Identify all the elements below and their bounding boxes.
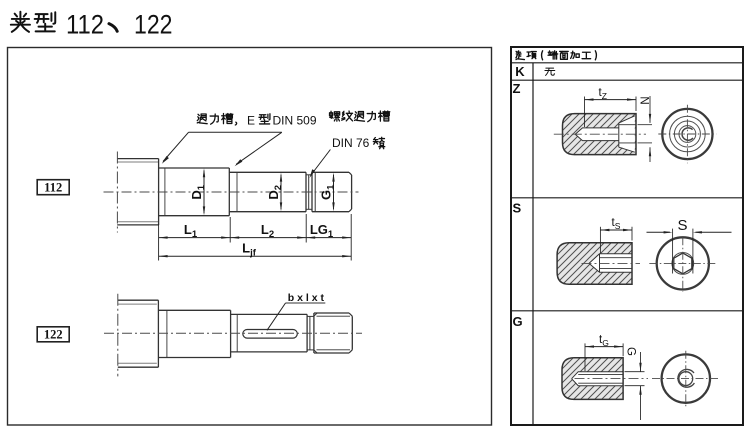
svg-text:122: 122 xyxy=(134,10,173,40)
svg-text:DIN 509: DIN 509 xyxy=(273,114,317,128)
svg-text:G: G xyxy=(625,347,637,356)
svg-text:122: 122 xyxy=(44,327,63,341)
svg-text:S: S xyxy=(677,217,687,234)
svg-text:G: G xyxy=(513,314,523,329)
svg-text:E: E xyxy=(247,114,255,128)
svg-text:DIN 76: DIN 76 xyxy=(332,136,370,150)
svg-text:112: 112 xyxy=(44,180,62,194)
svg-text:K: K xyxy=(515,64,525,79)
svg-text:S: S xyxy=(513,201,522,216)
svg-text:b x l x t: b x l x t xyxy=(288,292,325,304)
svg-text:Z: Z xyxy=(513,81,521,96)
svg-text:112: 112 xyxy=(66,10,104,40)
svg-text:N: N xyxy=(638,96,650,104)
